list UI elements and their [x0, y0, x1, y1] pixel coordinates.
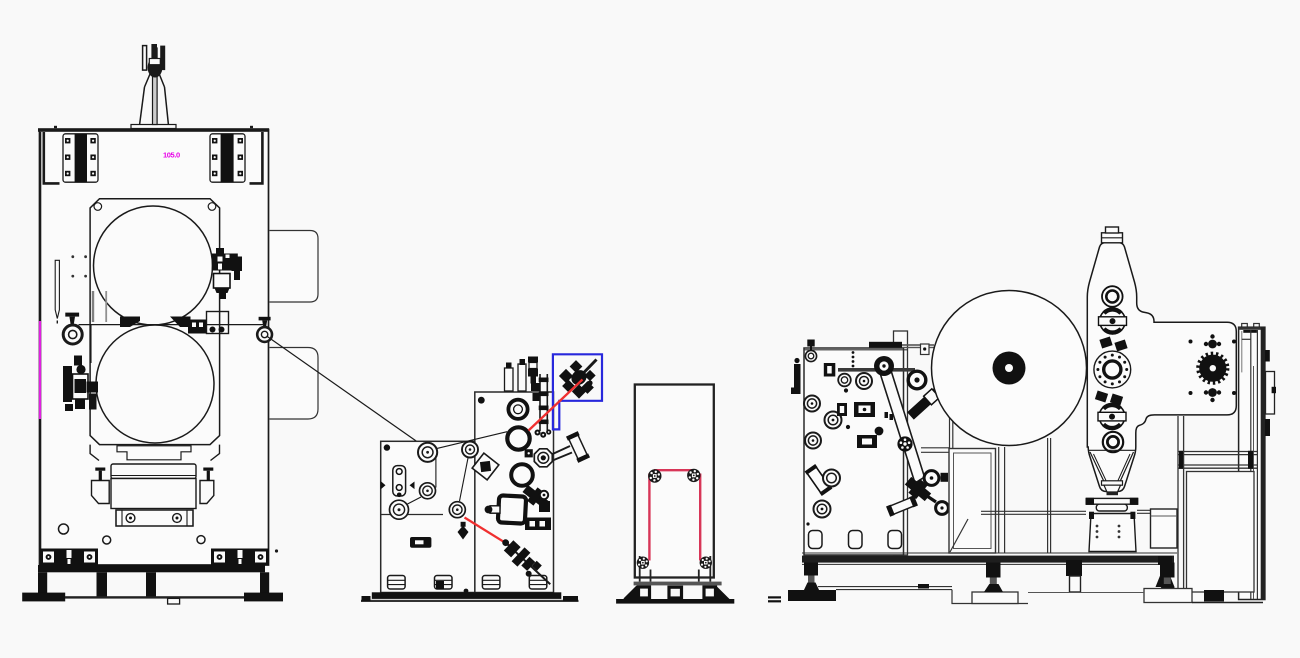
svg-text:105.0: 105.0 [163, 151, 180, 160]
